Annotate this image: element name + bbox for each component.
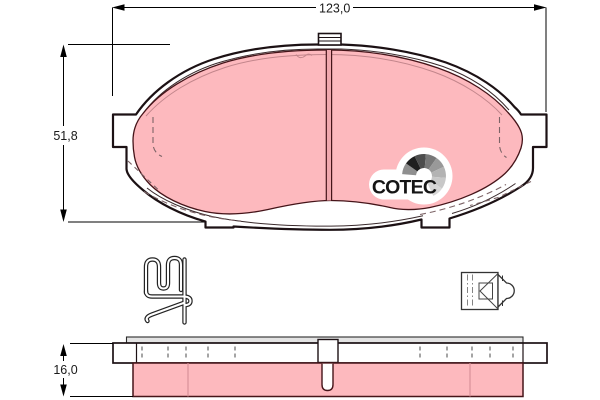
technical-drawing-page: 123,0 51,8 [0, 0, 600, 400]
accessory-part-drawing [462, 273, 515, 310]
spring-clip-drawing [146, 258, 191, 323]
arrowhead-up [60, 344, 67, 356]
arrowhead-right [534, 4, 547, 10]
friction-slot [322, 364, 333, 391]
brake-pad-technical-drawing: 123,0 51,8 [0, 0, 600, 400]
part-nose [498, 275, 514, 308]
dimension-thickness-label: 16,0 [53, 363, 77, 377]
logo-brand-text: COTEC [372, 177, 437, 199]
arrowhead-down [60, 385, 67, 397]
dimension-width-label: 123,0 [319, 2, 350, 16]
top-tab-body [319, 34, 342, 46]
side-view-tab [318, 340, 338, 363]
arrowhead-up [60, 45, 67, 58]
pad-side-view [113, 337, 547, 397]
top-tab [319, 34, 342, 46]
pad-top-view: COTEC [113, 34, 547, 230]
dimension-height-label: 51,8 [53, 129, 77, 143]
arrowhead-left [112, 4, 125, 10]
center-groove [326, 50, 331, 201]
arrowhead-down [60, 210, 67, 223]
clip-prongs [146, 258, 181, 293]
clip-bar [146, 291, 184, 297]
